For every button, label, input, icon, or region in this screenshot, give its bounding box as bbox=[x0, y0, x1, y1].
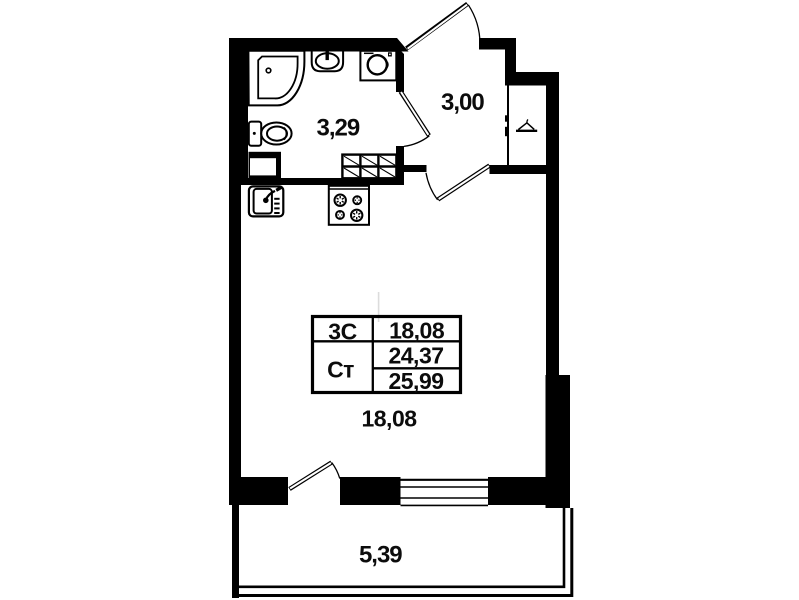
svg-text:Ст: Ст bbox=[327, 356, 354, 382]
svg-text:3,00: 3,00 bbox=[441, 89, 484, 116]
svg-text:3С: 3С bbox=[328, 319, 356, 345]
svg-text:18,08: 18,08 bbox=[361, 405, 417, 431]
svg-text:24,37: 24,37 bbox=[388, 342, 443, 368]
svg-text:3,29: 3,29 bbox=[317, 114, 360, 141]
svg-text:18,08: 18,08 bbox=[389, 318, 445, 344]
svg-text:25,99: 25,99 bbox=[388, 368, 443, 394]
svg-text:5,39: 5,39 bbox=[359, 542, 402, 569]
